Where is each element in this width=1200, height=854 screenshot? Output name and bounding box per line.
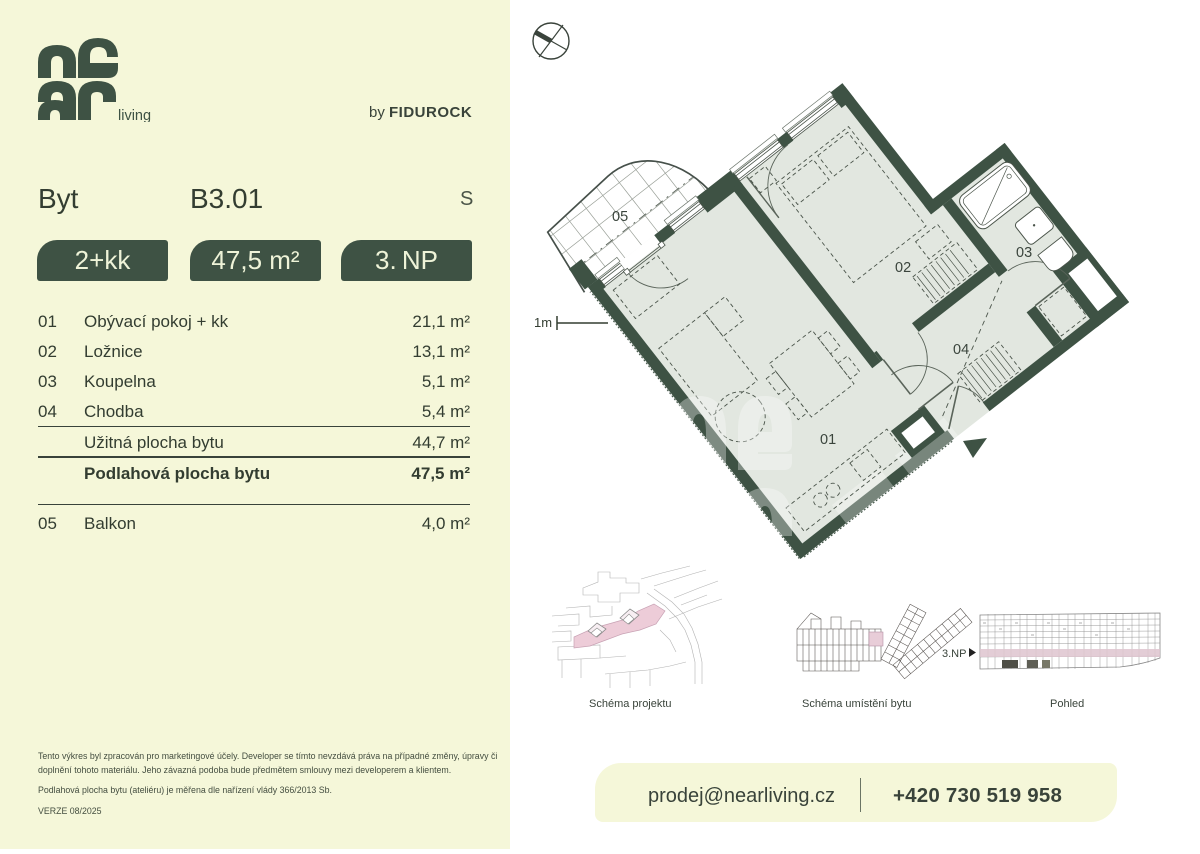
svg-text:1m: 1m: [534, 315, 552, 330]
svg-text:01: 01: [820, 432, 836, 448]
svg-text:02: 02: [895, 260, 911, 276]
svg-text:Pohled: Pohled: [1050, 698, 1084, 710]
svg-text:living: living: [118, 108, 151, 122]
svg-text:04: 04: [953, 342, 969, 358]
svg-text:05: 05: [612, 209, 628, 225]
svg-text:Schéma projektu: Schéma projektu: [589, 698, 672, 710]
svg-text:Schéma umístění bytu: Schéma umístění bytu: [802, 698, 911, 710]
svg-text:3.NP: 3.NP: [942, 648, 966, 660]
svg-text:03: 03: [1016, 245, 1032, 261]
